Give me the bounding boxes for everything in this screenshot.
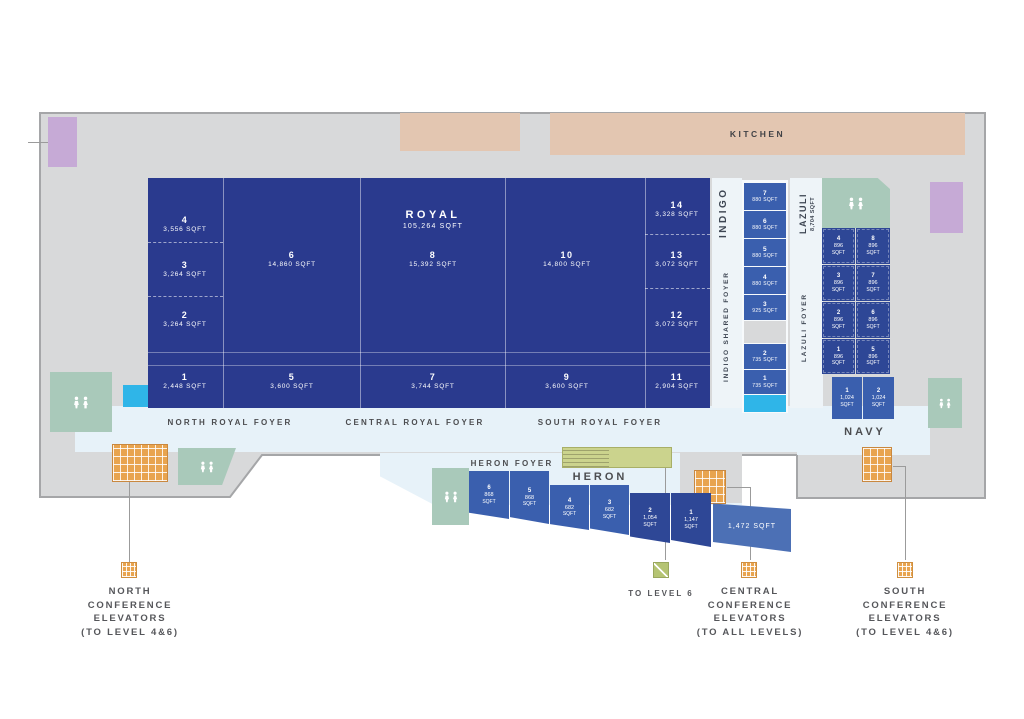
legend-north-elevators: NORTH CONFERENCE ELEVATORS (TO LEVEL 4&6…: [81, 585, 179, 639]
room-indigo-5: 5 880 SQFT: [744, 239, 786, 266]
room-number: 4: [837, 236, 840, 243]
room-sqft: 3,072 SQFT: [655, 261, 698, 268]
room-unit: SQFT: [482, 499, 495, 505]
room-sqft: 3,556 SQFT: [163, 226, 206, 233]
room-number: 11: [671, 372, 684, 382]
room-heron-1: 1 1,147 SQFT: [671, 493, 711, 547]
room-lazuli-4: 4 896 SQFT: [822, 228, 855, 264]
room-sqft: 880 SQFT: [752, 197, 777, 203]
room-lazuli-2: 2 896 SQFT: [822, 302, 855, 338]
room-lazuli-8: 8 896 SQFT: [856, 228, 890, 264]
room-number: 4: [182, 215, 189, 225]
room-heron-4: 4 682 SQFT: [550, 485, 589, 530]
conference-level-floor-plan: KITCHEN ROYAL 105,264 SQFT 4 3,556 SQFT …: [0, 0, 1024, 719]
room-number: 6: [289, 250, 296, 260]
restroom-icon: [71, 396, 91, 409]
room-sqft: 3,744 SQFT: [411, 383, 454, 390]
legend-line: ELEVATORS: [81, 612, 179, 626]
legend-line: NORTH: [81, 585, 179, 599]
legend-line: SOUTH: [856, 585, 954, 599]
room-unit: SQFT: [603, 514, 616, 520]
room-number: 7: [871, 273, 874, 280]
kitchen-area: KITCHEN: [550, 113, 965, 155]
airwall-line: [148, 296, 223, 297]
room-royal-11: 11 2,904 SQFT: [655, 372, 698, 390]
room-sqft: 14,800 SQFT: [543, 261, 591, 268]
legend-line: (TO ALL LEVELS): [697, 626, 804, 640]
room-sqft: 3,600 SQFT: [270, 383, 313, 390]
legend-line: ELEVATORS: [697, 612, 804, 626]
room-royal-5: 5 3,600 SQFT: [270, 372, 313, 390]
room-sqft: 3,264 SQFT: [163, 321, 206, 328]
wall-line: [645, 178, 646, 408]
heron-label: HERON: [573, 471, 628, 483]
royal-title: ROYAL 105,264 SQFT: [403, 209, 463, 230]
legend-line: CONFERENCE: [697, 599, 804, 613]
lazuli-total-sqft: 8,704 SQFT: [810, 182, 816, 246]
room-number: 1: [837, 347, 840, 354]
service-area-right: [930, 182, 963, 233]
restroom-icon: [442, 491, 460, 503]
room-number: 2: [648, 508, 651, 515]
elevator-icon: [897, 562, 913, 578]
room-number: 3: [182, 260, 189, 270]
corridor-line: [148, 352, 710, 353]
room-number: 2: [763, 350, 767, 358]
room-navy-1: 1 1,024 SQFT: [832, 377, 862, 419]
room-area: 896: [868, 243, 877, 250]
room-royal-7: 7 3,744 SQFT: [411, 372, 454, 390]
escalator-steps: [563, 448, 609, 467]
legend-line: (TO LEVEL 4&6): [856, 626, 954, 640]
restroom-north: [50, 372, 112, 432]
foyer-label-heron: HERON FOYER: [471, 459, 554, 468]
restroom-icon: [937, 398, 953, 409]
room-number: 5: [289, 372, 296, 382]
room-number: 3: [763, 301, 767, 309]
room-number: 3: [608, 500, 611, 507]
airwall-line: [645, 288, 710, 289]
indigo-service-gap: [744, 321, 786, 343]
room-number: 6: [871, 310, 874, 317]
leader-line-south: [905, 466, 906, 560]
elevator-bank-south: [862, 447, 892, 482]
room-royal-4: 4 3,556 SQFT: [163, 215, 206, 233]
room-heron-6: 6 868 SQFT: [469, 471, 509, 519]
room-sqft: 3,600 SQFT: [545, 383, 588, 390]
room-sqft: 925 SQFT: [752, 308, 777, 314]
legend-line: CONFERENCE: [856, 599, 954, 613]
back-of-house-area: [400, 113, 520, 151]
room-number: 6: [487, 485, 490, 492]
airwall-line: [645, 234, 710, 235]
room-royal-1: 1 2,448 SQFT: [163, 372, 206, 390]
room-area: 1,147: [684, 517, 698, 524]
room-number: 7: [430, 372, 437, 382]
room-unit: SQFT: [866, 324, 879, 330]
room-unit: SQFT: [523, 501, 536, 507]
room-unit: SQFT: [643, 522, 656, 528]
room-royal-9: 9 3,600 SQFT: [545, 372, 588, 390]
lazuli-label: LAZULI: [798, 182, 808, 246]
room-royal-8: 8 15,392 SQFT: [409, 250, 457, 268]
room-royal-12: 12 3,072 SQFT: [655, 310, 698, 328]
foyer-label-south-royal: SOUTH ROYAL FOYER: [538, 418, 663, 427]
wall-line: [223, 178, 224, 408]
room-area: 682: [565, 505, 574, 512]
room-area: 896: [834, 317, 843, 324]
elevator-icon: [121, 562, 137, 578]
legend-south-elevators: SOUTH CONFERENCE ELEVATORS (TO LEVEL 4&6…: [856, 585, 954, 639]
room-unit: SQFT: [872, 402, 885, 408]
room-number: 12: [670, 310, 683, 320]
room-heron-3: 3 682 SQFT: [590, 485, 629, 535]
room-number: 3: [837, 273, 840, 280]
room-sqft: 14,860 SQFT: [268, 261, 316, 268]
room-royal-3: 3 3,264 SQFT: [163, 260, 206, 278]
royal-title-sqft: 105,264 SQFT: [403, 223, 463, 230]
legend-line: CENTRAL: [697, 585, 804, 599]
room-indigo-3: 3 925 SQFT: [744, 295, 786, 320]
room-number: 2: [877, 388, 880, 395]
room-lazuli-6: 6 896 SQFT: [856, 302, 890, 338]
room-indigo-1: 1 735 SQFT: [744, 370, 786, 394]
room-unit: SQFT: [866, 287, 879, 293]
navy-label: NAVY: [844, 426, 886, 438]
room-sqft: 880 SQFT: [752, 281, 777, 287]
room-number: 13: [670, 250, 683, 260]
kitchen-label: KITCHEN: [730, 129, 785, 139]
foyer-label-indigo-shared: INDIGO SHARED FOYER: [723, 246, 730, 408]
room-number: 9: [564, 372, 571, 382]
legend-central-elevators: CENTRAL CONFERENCE ELEVATORS (TO ALL LEV…: [697, 585, 804, 639]
room-heron-5: 5 868 SQFT: [510, 471, 549, 524]
royal-title-text: ROYAL: [405, 209, 460, 221]
room-unit: SQFT: [866, 250, 879, 256]
room-sqft: 15,392 SQFT: [409, 261, 457, 268]
room-indigo-2: 2 735 SQFT: [744, 344, 786, 369]
room-area: 896: [834, 354, 843, 361]
room-indigo-6: 6 880 SQFT: [744, 211, 786, 238]
room-sqft: 2,448 SQFT: [163, 383, 206, 390]
room-sqft: 735 SQFT: [752, 357, 777, 363]
legend-line: CONFERENCE: [81, 599, 179, 613]
legend-to-level-6: TO LEVEL 6: [628, 587, 694, 601]
room-sqft: 3,072 SQFT: [655, 321, 698, 328]
room-number: 4: [763, 274, 767, 282]
room-unit: SQFT: [684, 524, 697, 530]
room-lazuli-3: 3 896 SQFT: [822, 265, 855, 301]
indigo-stair-block: [744, 395, 786, 412]
room-number: 1: [845, 388, 848, 395]
room-number: 7: [763, 190, 767, 198]
room-number: 1: [763, 375, 767, 383]
room-unit: SQFT: [832, 324, 845, 330]
room-number: 4: [568, 498, 571, 505]
wall-line: [360, 178, 361, 408]
room-sqft: 880 SQFT: [752, 253, 777, 259]
room-area: 1,054: [643, 515, 657, 522]
room-number: 5: [871, 347, 874, 354]
room-sqft: 3,264 SQFT: [163, 271, 206, 278]
wall-line: [505, 178, 506, 408]
room-number: 6: [763, 218, 767, 226]
room-royal-2: 2 3,264 SQFT: [163, 310, 206, 328]
room-royal-13: 13 3,072 SQFT: [655, 250, 698, 268]
room-unit: SQFT: [563, 511, 576, 517]
pointer-line-service: [28, 142, 48, 143]
room-area: 896: [868, 280, 877, 287]
indigo-label: INDIGO: [718, 180, 729, 246]
restroom-lazuli: [822, 178, 890, 228]
room-number: 5: [528, 488, 531, 495]
room-number: 14: [670, 200, 683, 210]
room-sqft: 2,904 SQFT: [655, 383, 698, 390]
room-area: 896: [868, 317, 877, 324]
room-navy-2: 2 1,024 SQFT: [863, 377, 894, 419]
room-heron-2: 2 1,054 SQFT: [630, 493, 670, 543]
room-lazuli-5: 5 896 SQFT: [856, 339, 890, 374]
room-unit: SQFT: [832, 250, 845, 256]
room-unit: SQFT: [832, 360, 845, 366]
legend-line: (TO LEVEL 4&6): [81, 626, 179, 640]
room-lazuli-1: 1 896 SQFT: [822, 339, 855, 374]
room-unit: SQFT: [866, 360, 879, 366]
room-area: 868: [525, 495, 534, 502]
room-number: 8: [871, 236, 874, 243]
restroom-heron: [432, 468, 469, 525]
room-number: 1: [182, 372, 189, 382]
elevator-bank-north: [112, 444, 168, 482]
room-lazuli-7: 7 896 SQFT: [856, 265, 890, 301]
room-indigo-7: 7 880 SQFT: [744, 183, 786, 210]
room-indigo-4: 4 880 SQFT: [744, 267, 786, 294]
room-number: 10: [560, 250, 573, 260]
restroom-icon: [846, 197, 866, 210]
room-sqft: 880 SQFT: [752, 225, 777, 231]
stair-block-north: [123, 385, 148, 407]
room-sqft: 735 SQFT: [752, 383, 777, 389]
restroom-icon: [198, 461, 216, 473]
room-royal-6: 6 14,860 SQFT: [268, 250, 316, 268]
room-sqft: 3,328 SQFT: [655, 211, 698, 218]
restroom-south: [928, 378, 962, 428]
foyer-label-north-royal: NORTH ROYAL FOYER: [168, 418, 293, 427]
elevator-icon: [741, 562, 757, 578]
escalator-icon: [653, 562, 669, 578]
room-unit: SQFT: [840, 402, 853, 408]
room-number: 2: [837, 310, 840, 317]
room-area: 896: [834, 280, 843, 287]
legend-line: ELEVATORS: [856, 612, 954, 626]
room-area: 1,024: [840, 395, 854, 402]
room-area: 896: [834, 243, 843, 250]
room-sqft: 1,472 SQFT: [728, 523, 776, 531]
room-number: 1: [689, 510, 692, 517]
room-number: 5: [763, 246, 767, 254]
room-royal-14: 14 3,328 SQFT: [655, 200, 698, 218]
room-area: 868: [484, 492, 493, 499]
room-number: 8: [430, 250, 437, 260]
room-area: 1,024: [872, 395, 886, 402]
foyer-label-lazuli: LAZULI FOYER: [801, 266, 808, 390]
corridor-line: [148, 365, 710, 366]
room-number: 2: [182, 310, 189, 320]
escalator-area: [562, 447, 672, 468]
service-area-top-left: [48, 117, 77, 167]
room-unit: SQFT: [832, 287, 845, 293]
room-royal-10: 10 14,800 SQFT: [543, 250, 591, 268]
leader-line-north: [129, 482, 130, 562]
leader-line-central: [727, 487, 751, 488]
room-area: 896: [868, 354, 877, 361]
airwall-line: [148, 242, 223, 243]
room-area: 682: [605, 507, 614, 514]
foyer-label-central-royal: CENTRAL ROYAL FOYER: [346, 418, 485, 427]
